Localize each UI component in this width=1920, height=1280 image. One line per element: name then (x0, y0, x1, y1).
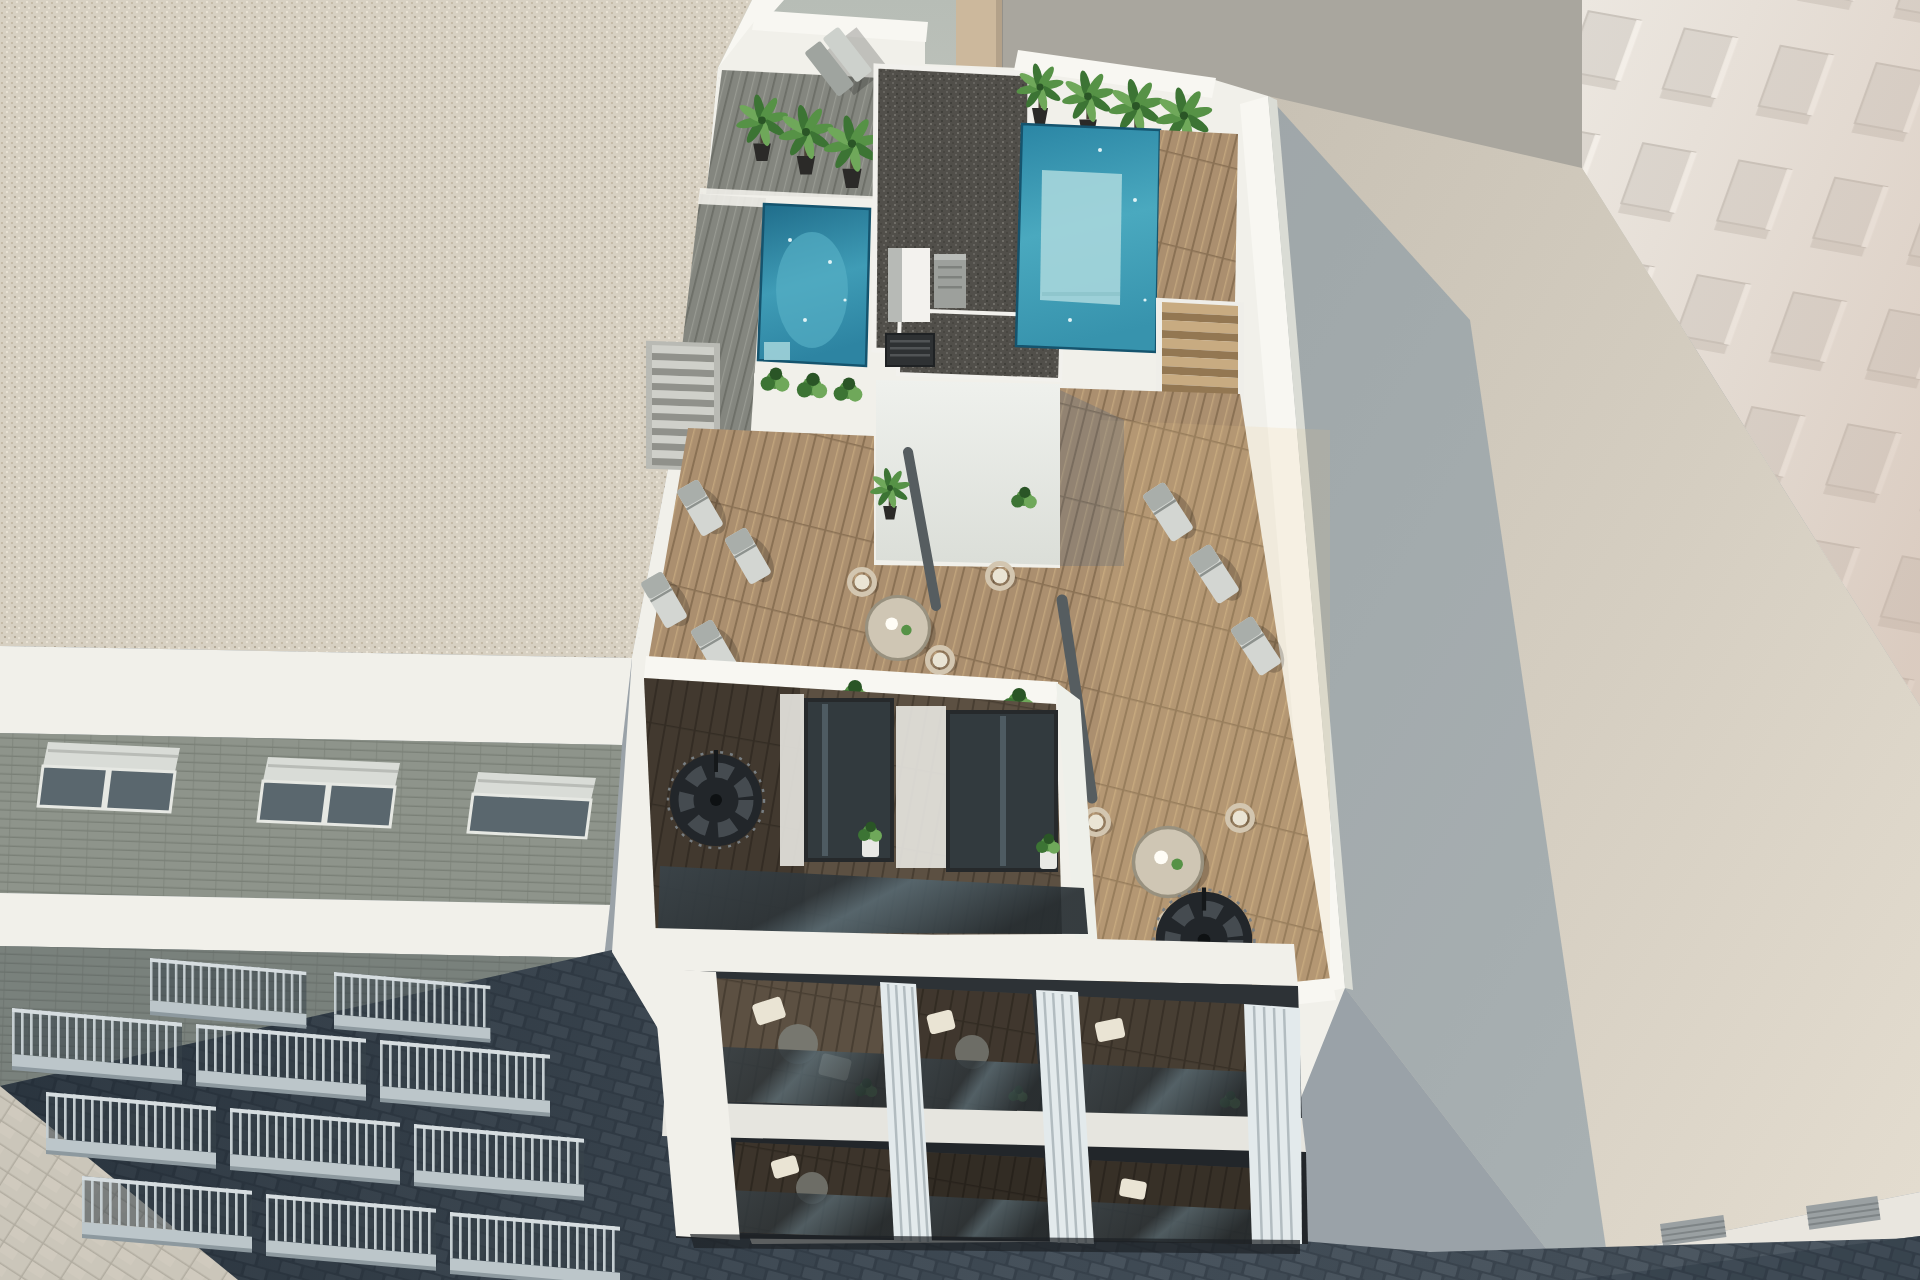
balcony-bay (728, 1142, 902, 1238)
balcony-bay (1070, 996, 1252, 1122)
core-wall (876, 380, 1060, 565)
right-pool (1016, 124, 1160, 352)
lower-floors (648, 928, 1308, 1254)
window-group (38, 742, 180, 812)
chimney (888, 248, 930, 322)
balcony-bay (920, 1152, 1050, 1240)
gravel-roof (0, 0, 752, 658)
window-group (258, 757, 400, 827)
vent-box (934, 254, 966, 308)
core-shadow (1060, 390, 1124, 566)
left-pool (758, 204, 870, 366)
ac-grille (886, 334, 934, 366)
balcony-bay (702, 978, 890, 1108)
window-group (468, 772, 596, 838)
parapet-band (0, 646, 632, 745)
balcony-bay (906, 988, 1042, 1114)
balcony-bay (1086, 1160, 1254, 1244)
scene-canvas (0, 0, 1920, 1280)
main-building (612, 10, 1353, 1254)
architectural-render (0, 0, 1920, 1280)
